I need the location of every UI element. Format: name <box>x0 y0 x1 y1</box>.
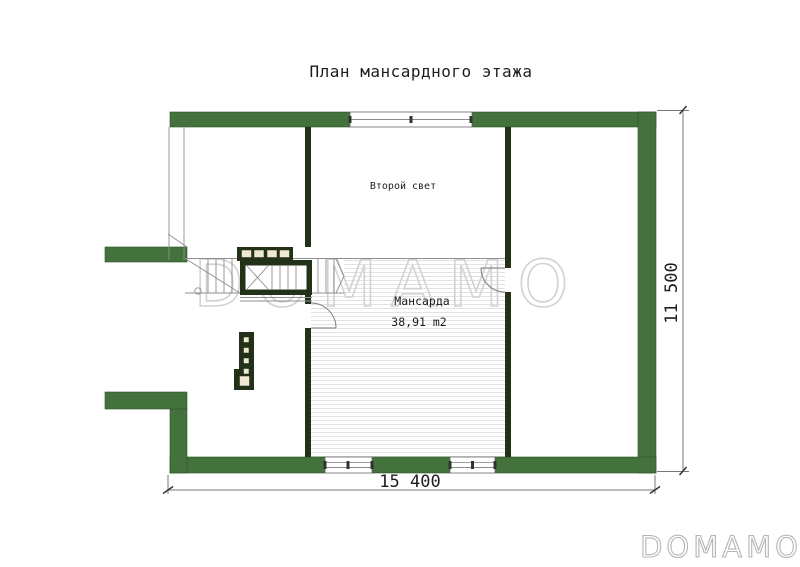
wall-stub-upper-left <box>105 247 187 262</box>
roof-edge-lines <box>168 127 187 260</box>
wall-bottom-center <box>372 457 450 473</box>
wall-second-light-upper <box>305 127 311 247</box>
wall-attic-left <box>305 328 311 457</box>
attic-floor-plan-drawing: DOMAMO <box>0 0 800 567</box>
dimension-width-label: 15 400 <box>379 472 440 492</box>
wall-right-room-upper <box>505 127 511 268</box>
floor-plan-page: { "page_title": "План мансардного этажа"… <box>0 0 800 567</box>
wall-stub-lower-left <box>105 392 187 409</box>
dimension-right: 11 500 <box>657 106 689 475</box>
dimension-bottom: 15 400 <box>163 472 660 494</box>
room-area-attic: 38,91 m2 <box>391 315 446 329</box>
window-top <box>349 112 473 127</box>
stair-railing <box>237 247 293 261</box>
stairwell-opening <box>246 266 307 290</box>
chimney <box>234 332 254 390</box>
wall-top-right <box>472 112 656 127</box>
room-label-second-light: Второй свет <box>370 180 436 192</box>
window-bottom-right <box>449 457 497 473</box>
wall-left-lower <box>170 409 187 473</box>
window-bottom-left <box>324 457 374 473</box>
wall-right <box>638 112 656 473</box>
wall-bottom-left <box>170 457 325 473</box>
wall-top-left <box>170 112 350 127</box>
room-label-attic: Мансарда <box>394 294 449 308</box>
wall-right-room-lower <box>505 292 511 457</box>
brand-logo: DOMAMO <box>640 530 800 564</box>
dimension-height-label: 11 500 <box>662 262 682 323</box>
wall-bottom-right <box>495 457 656 473</box>
page-title: План мансардного этажа <box>310 62 533 81</box>
